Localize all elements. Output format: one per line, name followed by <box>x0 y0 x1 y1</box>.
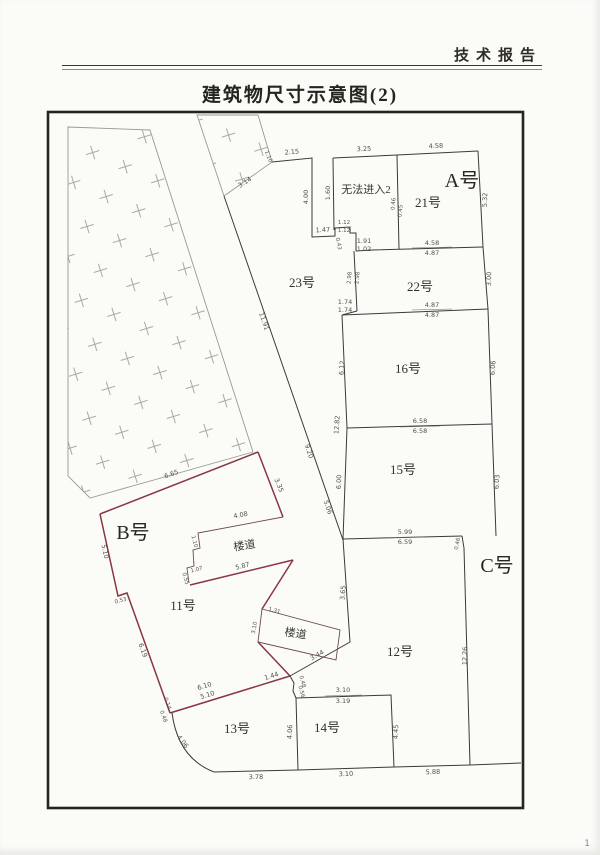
dim-a-right-5-32: 5.32 <box>481 193 490 208</box>
dim-r22-bot-4-87a: 4.87 <box>425 301 439 309</box>
dim-step-0-43: 0.43 <box>334 237 343 251</box>
dim-r15-right-6-03: 6.03 <box>493 474 502 489</box>
dim-b-ne-3-35: 3.35 <box>272 477 285 493</box>
room-label-13: 13号 <box>224 721 250 736</box>
wall-bottom-boundary <box>214 763 521 772</box>
dim-sep <box>412 309 452 310</box>
dim-r15-bot-5-99: 5.99 <box>398 528 412 536</box>
dim-corner-0-48: 0.48 <box>158 710 168 724</box>
dim-r15-corner-0-46: 0.46 <box>454 537 462 551</box>
dim-r16-bot-6-58b: 6.58 <box>413 427 427 435</box>
dim-r22-1-74a: 1.74 <box>338 298 352 306</box>
dim-arc-4-06: 4.06 <box>175 734 190 750</box>
dim-corr1-1-10: 1.10 <box>189 535 198 549</box>
dim-r16-left-6-12: 6.12 <box>338 360 347 375</box>
dim-b-west-5-10: 5.10 <box>100 544 111 560</box>
wall-junction-steps <box>290 676 296 698</box>
dim-r16-right-6-06: 6.06 <box>489 360 498 375</box>
dim-r12-right-12-26: 12.26 <box>461 646 470 665</box>
dim-r22-2-98a: 2.98 <box>346 271 353 284</box>
dim-a-top-4-58: 4.58 <box>428 142 443 151</box>
dim-step-1-12b: 1.12 <box>338 228 350 234</box>
corridor-lower-label: 楼道 <box>284 624 308 641</box>
dim-corr2-1-31: 1.31 <box>268 607 281 616</box>
wall-noentry-r21-divider <box>397 155 399 249</box>
dim-diag-5-06: 5.06 <box>322 499 334 515</box>
dim-r22-right-3-00: 3.00 <box>485 272 494 287</box>
dim-diag-11-91: 11.91 <box>257 311 271 331</box>
dim-left-4-00: 4.00 <box>302 190 310 204</box>
dim-r16-bot-6-58a: 6.58 <box>413 417 427 425</box>
room-label-22: 22号 <box>407 279 433 294</box>
room-label-23: 23号 <box>289 275 315 290</box>
wall-r14-left <box>296 698 298 770</box>
dim-corr1-4-08: 4.08 <box>233 510 249 521</box>
zone-label-a: A号 <box>445 170 479 192</box>
dim-r14-top-3-19: 3.19 <box>336 697 350 705</box>
dim-r22-bot-4-87b: 4.87 <box>425 311 439 319</box>
b-outline-south <box>170 676 290 713</box>
dim-noentry-3-25: 3.25 <box>357 145 372 154</box>
page-number: 1 <box>584 839 590 849</box>
dim-corr1-5-87: 5.87 <box>235 560 251 571</box>
dim-step-1-12a: 1.12 <box>338 220 350 226</box>
dim-r21-bot-4-58: 4.58 <box>425 239 439 247</box>
room-label-12: 12号 <box>387 644 413 659</box>
wall-r15-left <box>343 428 347 539</box>
dim-1-02: 1.02 <box>357 245 371 253</box>
room-label-16: 16号 <box>395 361 421 376</box>
wall-noentry-left <box>333 158 334 230</box>
hatch-area-top <box>197 115 272 196</box>
dim-1-91: 1.91 <box>357 237 371 245</box>
building-dimension-plan: A号 B号 C号 无法进入2 21号 22号 23号 16号 15号 12号 1… <box>0 0 600 855</box>
no-entry-label: 无法进入2 <box>341 182 391 196</box>
dim-r14-right-4-45: 4.45 <box>392 724 401 739</box>
dim-r15-bot-6-59: 6.59 <box>398 538 412 546</box>
wall-a-top <box>333 151 478 158</box>
room-label-11: 11号 <box>170 598 196 613</box>
dim-left-12-82: 12.82 <box>332 415 341 434</box>
zone-label-b: B号 <box>116 522 149 544</box>
dim-diag-9-20: 9.20 <box>303 443 315 459</box>
dim-top-2-15: 2.15 <box>284 147 299 156</box>
room-label-15: 15号 <box>390 462 416 477</box>
wall-noentry-steps <box>272 158 356 251</box>
dim-r12-left-3-65: 3.65 <box>338 585 347 600</box>
b-outline-r11-east <box>262 560 293 609</box>
room-label-14: 14号 <box>314 720 340 735</box>
dim-bot-3-78: 3.78 <box>249 773 264 781</box>
dim-r14-left-4-06: 4.06 <box>286 724 295 739</box>
zone-label-c: C号 <box>480 555 513 577</box>
dim-r14-top-3-10: 3.10 <box>336 686 350 694</box>
dim-b-west-0-53: 0.53 <box>114 596 128 605</box>
dim-div-0-45: 0.45 <box>397 204 404 217</box>
corridor-upper-label: 楼道 <box>232 536 256 553</box>
dim-noentry-1-60: 1.60 <box>324 186 332 200</box>
dim-step-1-47: 1.47 <box>315 226 330 235</box>
dim-r15-left-6-00: 6.00 <box>335 475 344 490</box>
room-label-21: 21号 <box>415 195 441 210</box>
scanned-report-page: 技术报告 建筑物尺寸示意图(2) <box>0 0 600 855</box>
dim-corr2-3-10: 3.10 <box>251 621 259 635</box>
dim-b-west-6-19: 6.19 <box>137 642 149 658</box>
dim-r22-1-74b: 1.74 <box>338 306 352 314</box>
dim-corner-0-14: 0.14 <box>162 697 172 711</box>
dim-div-0-46: 0.46 <box>390 197 397 210</box>
dim-bot-3-10: 3.10 <box>339 770 354 779</box>
dim-bot-5-88: 5.88 <box>426 768 441 777</box>
dim-r21-bot-4-87: 4.87 <box>425 249 439 257</box>
wall-r14-top-right <box>296 695 394 767</box>
dim-r22-2-98b: 2.98 <box>354 271 361 284</box>
